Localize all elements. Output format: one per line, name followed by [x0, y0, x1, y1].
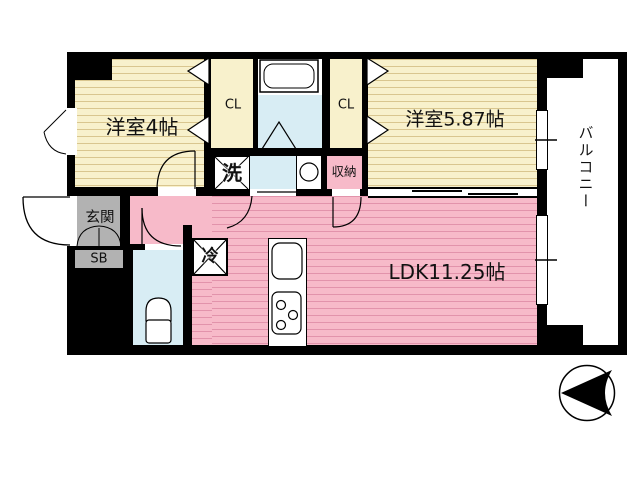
wall-bath-east [322, 59, 330, 148]
wall-entrance-east [120, 192, 130, 247]
ldk-label: LDK11.25帖 [389, 262, 506, 282]
pillar-northwest [75, 59, 112, 80]
wall-ldk-north-c [360, 189, 368, 196]
wall-closet-right [362, 59, 368, 192]
wall-bottom [67, 345, 627, 355]
window-opening-bedroom1-west [66, 108, 77, 155]
sliding-door-bedroom2 [368, 187, 537, 198]
wall-toilet-west [123, 247, 133, 345]
wall-closet-left [204, 59, 211, 156]
wall-shoebox-top [75, 246, 123, 250]
laundry-label: 洗 [222, 163, 242, 183]
entrance-door-opening [66, 196, 77, 246]
wall-bath-west [253, 59, 258, 148]
storage-door-opening [332, 189, 360, 196]
entrance-door-swing [23, 197, 70, 245]
wall-bath-south [204, 148, 368, 156]
shoebox-label: SB [90, 253, 107, 266]
wall-toilet-north [123, 244, 145, 250]
washroom-door-opening [250, 189, 296, 196]
wall-balcony-right [618, 52, 627, 355]
bedroom1-window-swing [44, 110, 66, 154]
sliding-door-track-1 [412, 190, 462, 192]
pipe-space-black [75, 268, 123, 345]
balcony-label: バルコニー [578, 125, 593, 210]
wall-toilet-east [183, 225, 192, 345]
entrance-label: 玄関 [86, 211, 115, 226]
window-ldk-east [536, 215, 548, 305]
wall-bedroom1-south-a [67, 187, 158, 196]
wall-washroom-east [322, 156, 327, 192]
closet-left-label: CL [225, 99, 241, 112]
toilet-door-opening [145, 244, 183, 250]
pillar-balcony-top [547, 59, 583, 78]
kitchen-counter [268, 238, 307, 347]
washbasin-box [296, 155, 322, 190]
bedroom1-label: 洋室4帖 [106, 117, 179, 137]
wall-ldk-north-a [211, 189, 250, 196]
wall-ldk-north-b [296, 189, 332, 196]
refrigerator-label: 冷 [202, 249, 219, 266]
bedroom1-door-opening [158, 187, 196, 196]
compass-north-icon [560, 366, 615, 421]
bedroom2-label: 洋室5.87帖 [405, 111, 504, 130]
floorplan-canvas: 洋室4帖 洋室5.87帖 LDK11.25帖 CL CL 収納 洗 冷 玄関 S… [0, 0, 640, 480]
toilet-floor [133, 250, 183, 345]
storage-label: 収納 [331, 166, 356, 179]
pillar-balcony-bottom [547, 325, 583, 345]
closet-right-label: CL [338, 99, 354, 112]
sliding-door-track-2 [468, 193, 518, 195]
bathtub-area [258, 59, 322, 95]
window-bedroom2-east [536, 110, 548, 170]
